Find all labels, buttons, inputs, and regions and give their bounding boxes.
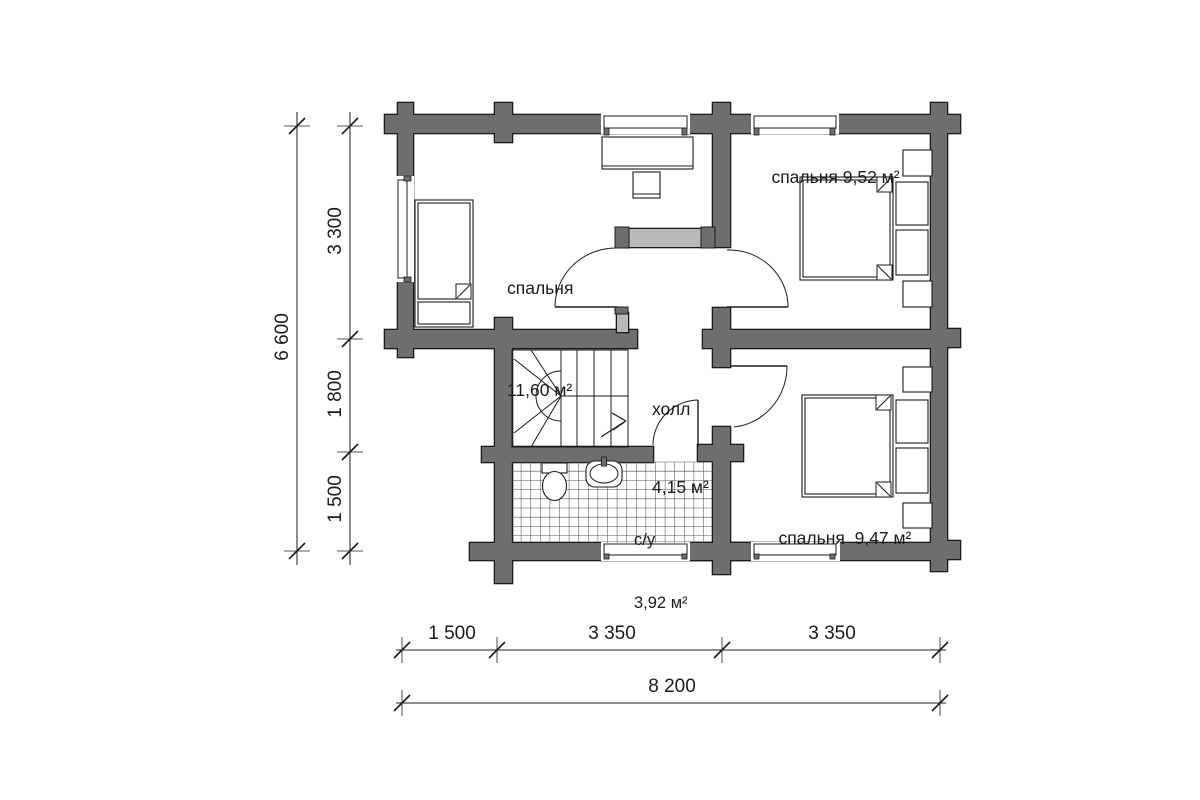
dim-label-bottom-3350-b: 3 350 xyxy=(808,623,856,645)
floor-plan-drawing xyxy=(0,0,1200,800)
dim-label-bottom-3350-a: 3 350 xyxy=(588,623,636,645)
room-name: спальня xyxy=(507,271,573,305)
dim-label-left-3300: 3 300 xyxy=(325,207,347,255)
room-name-area: спальня 9,52 м² xyxy=(771,167,899,187)
room-label-bathroom: с/у 3,92 м² xyxy=(634,488,688,656)
dim-label-bottom-total: 8 200 xyxy=(648,676,696,698)
room-area: 11,60 м² xyxy=(507,373,573,407)
room-label-bedroom-bottom-right: спальня 9,47 м² xyxy=(759,507,911,570)
dim-label-left-1500: 1 500 xyxy=(325,475,347,523)
room-label-bedroom-top-right: спальня 9,52 м² xyxy=(752,146,900,209)
room-name: холл xyxy=(652,396,709,422)
room-label-bedroom-left: спальня 11,60 м² xyxy=(507,203,573,475)
room-area: 3,92 м² xyxy=(634,593,688,614)
room-name: с/у xyxy=(634,530,688,551)
dim-label-bottom-1500: 1 500 xyxy=(428,623,476,645)
dim-label-left-total: 6 600 xyxy=(272,313,294,361)
floor-plan-page: спальня 11,60 м² спальня 9,52 м² холл 4,… xyxy=(0,0,1200,800)
dim-label-left-1800: 1 800 xyxy=(325,370,347,418)
room-name-area: спальня 9,47 м² xyxy=(778,528,911,548)
